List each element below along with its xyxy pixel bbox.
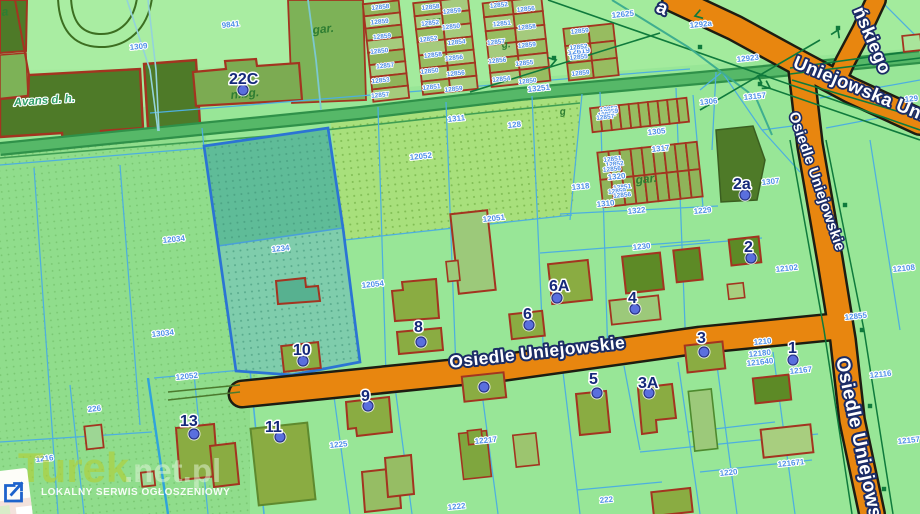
svg-text:13: 13 [180, 413, 198, 430]
svg-text:1222: 1222 [447, 501, 466, 512]
svg-text:1220: 1220 [719, 467, 738, 478]
svg-text:3: 3 [697, 330, 706, 347]
svg-text:1: 1 [788, 340, 797, 357]
svg-text:1309: 1309 [129, 41, 148, 52]
svg-text:Turek: Turek [18, 444, 130, 491]
svg-text:6A: 6A [549, 278, 570, 295]
svg-text:4: 4 [628, 290, 637, 307]
svg-text:g: g [558, 106, 566, 118]
svg-text:8: 8 [414, 319, 423, 336]
svg-text:11: 11 [265, 419, 282, 436]
svg-text:2a: 2a [733, 176, 751, 193]
svg-text:129: 129 [904, 94, 919, 104]
svg-text:1307: 1307 [761, 176, 780, 187]
svg-text:1230: 1230 [632, 241, 651, 252]
svg-text:1234: 1234 [271, 243, 290, 254]
svg-text:5: 5 [589, 371, 598, 388]
svg-text:1306: 1306 [699, 96, 718, 107]
svg-text:1318: 1318 [571, 181, 590, 192]
svg-text:22C: 22C [229, 71, 259, 88]
svg-text:1305: 1305 [647, 126, 666, 137]
svg-text:1210: 1210 [753, 336, 772, 347]
svg-text:1317: 1317 [651, 143, 670, 154]
svg-text:10: 10 [293, 342, 311, 359]
svg-text:gar.: gar. [634, 171, 658, 187]
svg-text:1229: 1229 [693, 205, 712, 216]
svg-text:6: 6 [523, 306, 532, 323]
svg-text:gar.: gar. [311, 21, 335, 37]
svg-text:9841: 9841 [221, 19, 240, 30]
svg-text:LOKALNY SERWIS OGŁOSZENIOWY: LOKALNY SERWIS OGŁOSZENIOWY [41, 487, 230, 498]
svg-text:3A: 3A [638, 375, 659, 392]
svg-text:128: 128 [507, 120, 522, 130]
svg-text:.net.pl: .net.pl [124, 452, 221, 489]
svg-text:2: 2 [744, 239, 753, 256]
svg-text:226: 226 [87, 404, 102, 414]
svg-text:1225: 1225 [329, 439, 348, 450]
svg-text:1322: 1322 [627, 205, 646, 216]
svg-text:1311: 1311 [447, 113, 466, 124]
svg-text:9: 9 [361, 388, 370, 405]
svg-text:222: 222 [599, 495, 614, 505]
